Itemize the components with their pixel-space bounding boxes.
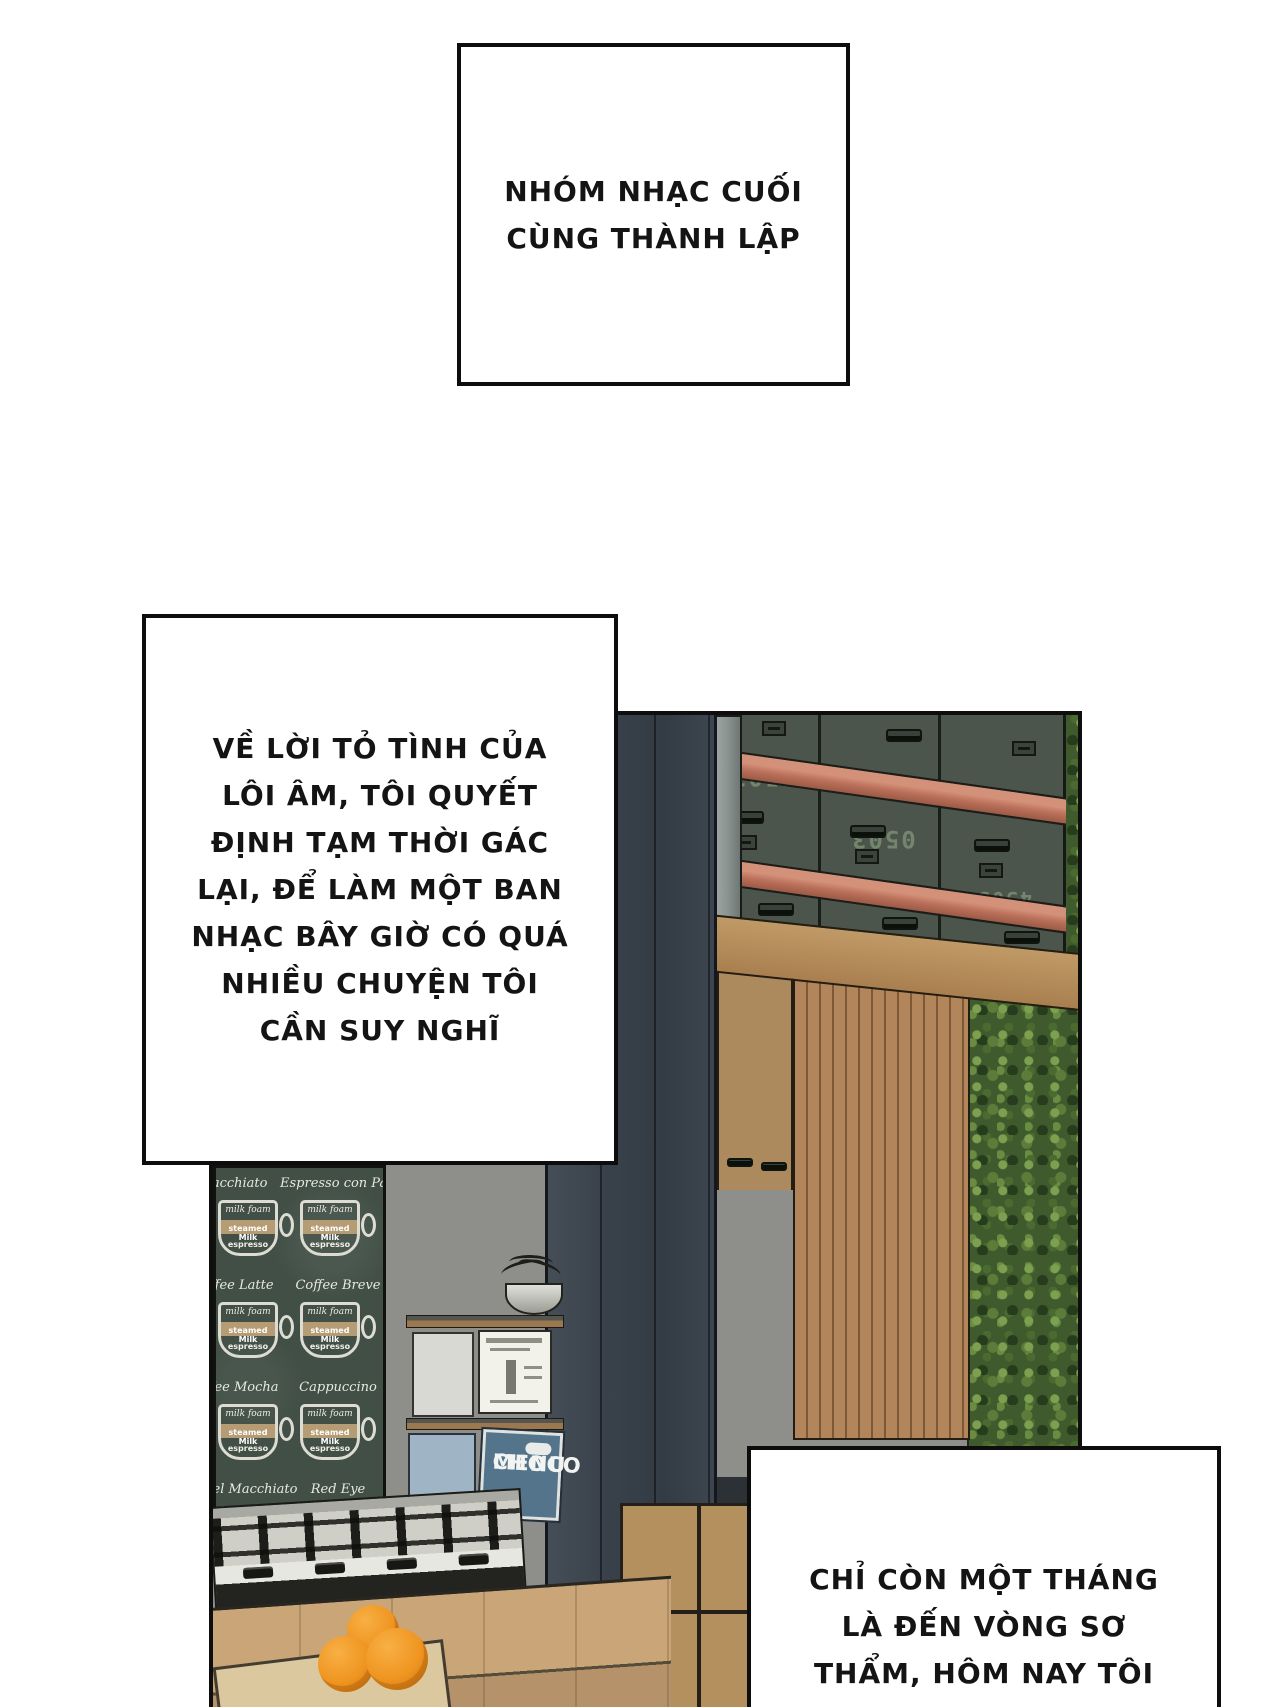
poster-line bbox=[524, 1366, 542, 1369]
speech-line: LÔI ÂM, TÔI QUYẾT bbox=[222, 772, 538, 819]
drawer-handle bbox=[850, 825, 886, 838]
cup-text: espresso bbox=[221, 1444, 275, 1453]
cup-text: milk foam bbox=[303, 1205, 357, 1215]
drawer-label-plate bbox=[762, 721, 786, 736]
cup-body: milk foam steamed Milk espresso bbox=[218, 1302, 278, 1358]
cup-body: milk foam steamed Milk espresso bbox=[218, 1200, 278, 1256]
drawer-label-plate bbox=[979, 863, 1003, 878]
poster-figure bbox=[506, 1360, 516, 1394]
speech-line: ĐỊNH TẠM THỜI GÁC bbox=[211, 819, 549, 866]
drawer-handle bbox=[974, 839, 1010, 852]
cup-body: milk foam steamed Milk espresso bbox=[218, 1404, 278, 1460]
menu-row: Coffee Mocha Cappuccino milk foam steame… bbox=[216, 1380, 383, 1482]
cup-text: milk foam bbox=[221, 1409, 275, 1419]
poster-line bbox=[490, 1348, 530, 1351]
poster-line bbox=[524, 1376, 542, 1379]
cup-handle bbox=[279, 1417, 294, 1441]
wood-slat-wall bbox=[793, 948, 970, 1440]
speech-box-bottom: CHỈ CÒN MỘT THÁNG LÀ ĐẾN VÒNG SƠ THẨM, H… bbox=[747, 1446, 1221, 1707]
cup-handle bbox=[361, 1417, 376, 1441]
speech-line: NHẠC BÂY GIỜ CÓ QUÁ bbox=[191, 913, 568, 960]
coffee-cup-drawing: milk foam steamed Milk espresso bbox=[300, 1302, 376, 1360]
cup-handle bbox=[361, 1213, 376, 1237]
speech-line: LÀ ĐẾN VÒNG SƠ bbox=[842, 1603, 1127, 1650]
cup-handle bbox=[279, 1315, 294, 1339]
speech-line: CÙNG THÀNH LẬP bbox=[506, 215, 800, 262]
cup-text: espresso bbox=[303, 1444, 357, 1453]
burner-cap bbox=[315, 1562, 346, 1575]
coffee-cup-drawing: milk foam steamed Milk espresso bbox=[218, 1302, 294, 1360]
cup-body: milk foam steamed Milk espresso bbox=[300, 1302, 360, 1358]
cup-text: espresso bbox=[303, 1342, 357, 1351]
coffee-cup-drawing: milk foam steamed Milk espresso bbox=[218, 1200, 294, 1258]
speech-line: VỀ LỜI TỎ TÌNH CỦA bbox=[213, 725, 548, 772]
cup-text: milk foam bbox=[303, 1409, 357, 1419]
menu-row: Coffee Latte Coffee Breve milk foam stea… bbox=[216, 1278, 383, 1380]
cabinet-handle bbox=[727, 1158, 753, 1167]
comic-page: 4503 0503 4503 Macc bbox=[0, 0, 1280, 1707]
speech-box-middle: VỀ LỜI TỎ TÌNH CỦA LÔI ÂM, TÔI QUYẾT ĐỊN… bbox=[142, 614, 618, 1165]
cup-text: espresso bbox=[221, 1342, 275, 1351]
vintage-poster bbox=[478, 1330, 552, 1414]
cabinet-handle bbox=[761, 1162, 787, 1171]
menu-label: Coffee Breve bbox=[280, 1278, 386, 1293]
menu-row: Macchiato Espresso con Panna milk foam s… bbox=[216, 1176, 383, 1278]
drawer-handle bbox=[1004, 931, 1040, 944]
speech-box-top: NHÓM NHẠC CUỐI CÙNG THÀNH LẬP bbox=[457, 43, 850, 386]
cup-text: espresso bbox=[221, 1240, 275, 1249]
cup-text: espresso bbox=[303, 1240, 357, 1249]
burner-cap bbox=[387, 1557, 418, 1570]
speech-line: CẦN SUY NGHĨ bbox=[260, 1007, 501, 1054]
speech-line: LẠI, ĐỂ LÀM MỘT BAN bbox=[197, 866, 563, 913]
drawer-label-plate bbox=[855, 849, 879, 864]
burner-cap bbox=[243, 1566, 274, 1579]
cup-body: milk foam steamed Milk espresso bbox=[300, 1200, 360, 1256]
shelf-bar bbox=[406, 1315, 564, 1328]
cup-text: milk foam bbox=[221, 1205, 275, 1215]
burner-cap bbox=[458, 1553, 489, 1566]
crate-seam bbox=[697, 1506, 701, 1707]
drawer-handle bbox=[882, 917, 918, 930]
speech-line: NHÓM NHẠC CUỐI bbox=[504, 168, 803, 215]
cup-text: milk foam bbox=[221, 1307, 275, 1317]
coffee-cup-drawing: milk foam steamed Milk espresso bbox=[300, 1404, 376, 1462]
coffee-cup-drawing: milk foam steamed Milk espresso bbox=[218, 1404, 294, 1462]
drawer-handle bbox=[758, 903, 794, 916]
sign-line2: MENU bbox=[492, 1449, 567, 1479]
cup-text: milk foam bbox=[303, 1307, 357, 1317]
speech-line: NHIỀU CHUYỆN TÔI bbox=[221, 960, 539, 1007]
cup-body: milk foam steamed Milk espresso bbox=[300, 1404, 360, 1460]
orange-fruit bbox=[366, 1628, 428, 1690]
cup-handle bbox=[279, 1213, 294, 1237]
drawer-handle bbox=[886, 729, 922, 742]
menu-label: Red Eye bbox=[280, 1482, 386, 1497]
poster-line bbox=[490, 1400, 538, 1403]
speech-line: CHỈ CÒN MỘT THÁNG bbox=[809, 1556, 1159, 1603]
menu-label: Cappuccino bbox=[280, 1380, 386, 1395]
coffee-cup-drawing: milk foam steamed Milk espresso bbox=[300, 1200, 376, 1258]
speech-line: THẨM, HÔM NAY TÔI bbox=[814, 1650, 1154, 1697]
chalkboard-menu: Macchiato Espresso con Panna milk foam s… bbox=[213, 1165, 386, 1533]
drawer-label-plate bbox=[1012, 741, 1036, 756]
poster-line bbox=[486, 1338, 542, 1343]
menu-label: Espresso con Panna bbox=[280, 1176, 386, 1191]
cup-handle bbox=[361, 1315, 376, 1339]
storage-box bbox=[412, 1332, 474, 1417]
